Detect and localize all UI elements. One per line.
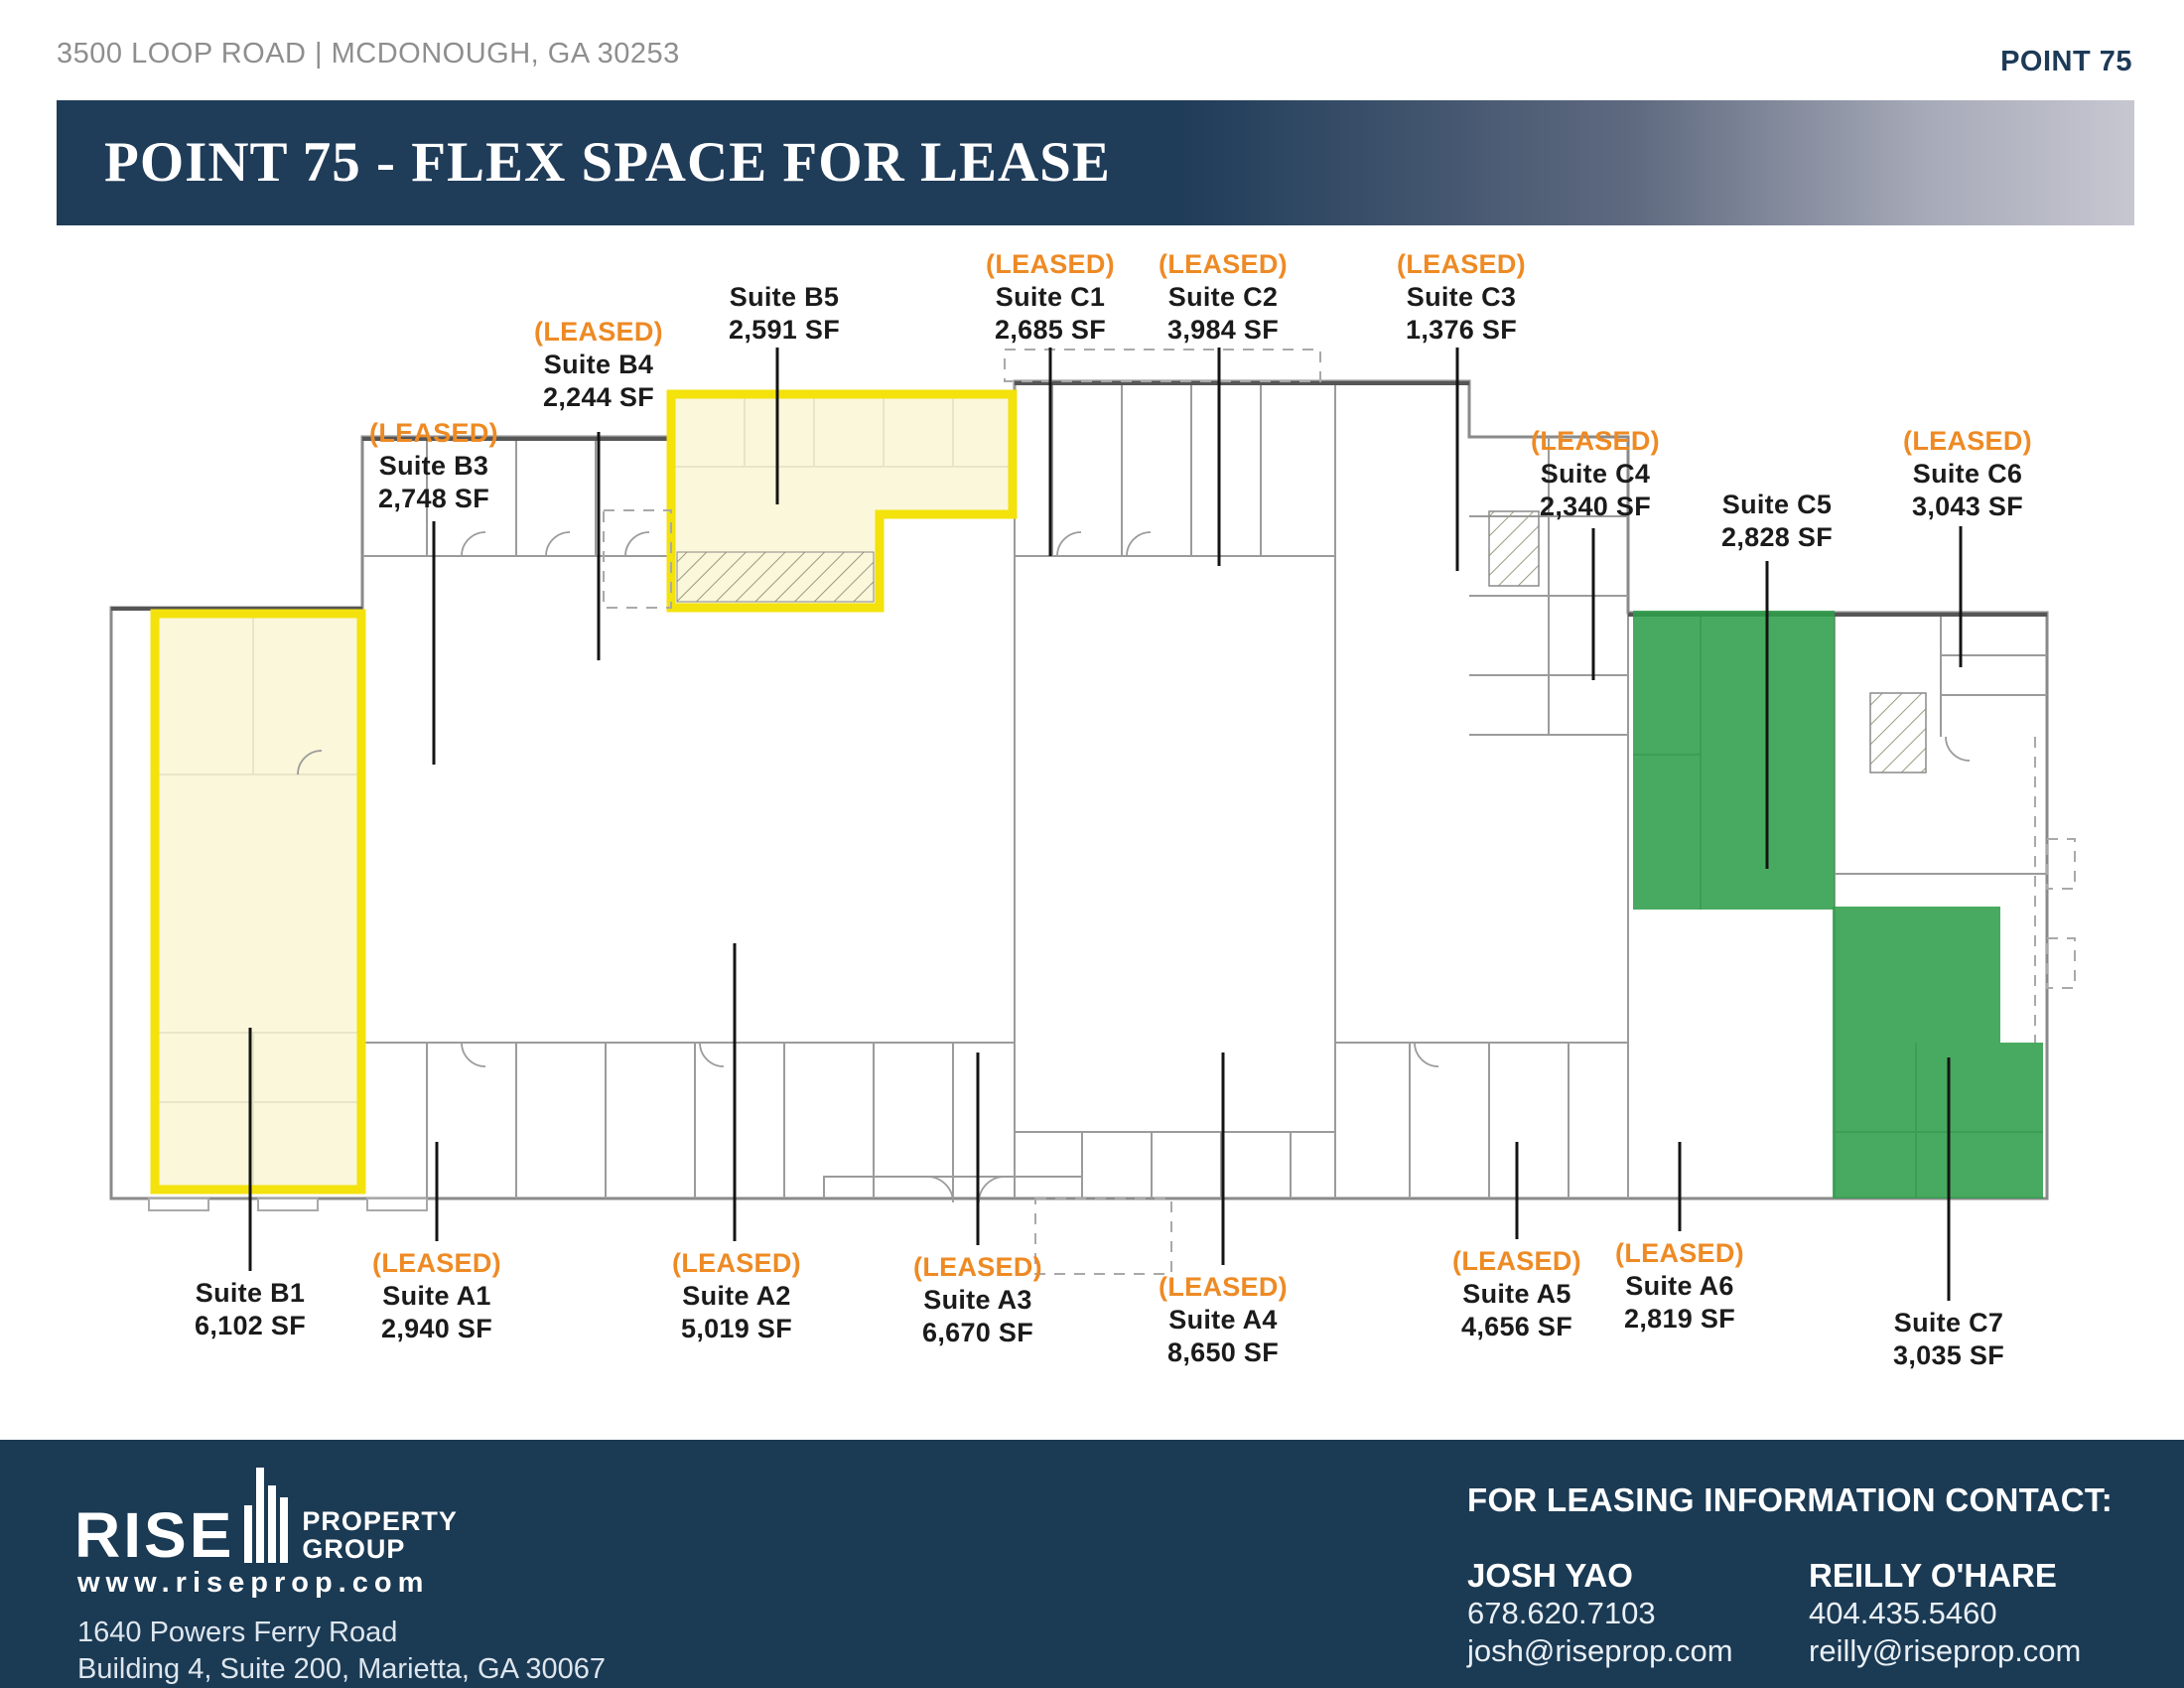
- suite-c5-highlight[interactable]: [1633, 611, 1835, 910]
- suite-name: Suite B4: [534, 349, 663, 381]
- contact-name: REILLY O'HARE: [1809, 1557, 2081, 1595]
- suite-name: Suite C2: [1159, 281, 1288, 314]
- suite-name: Suite A5: [1452, 1278, 1581, 1311]
- suite-label-c6: (LEASED) Suite C6 3,043 SF: [1903, 425, 2032, 523]
- contact-card-josh-yao: JOSH YAO 678.620.7103 josh@riseprop.com: [1467, 1557, 1733, 1670]
- logo-subtitle-line1: PROPERTY: [302, 1507, 458, 1535]
- suite-name: Suite C4: [1531, 458, 1660, 491]
- suite-sf: 6,102 SF: [195, 1310, 306, 1342]
- suite-name: Suite C7: [1893, 1307, 2004, 1339]
- suite-label-a4: (LEASED) Suite A4 8,650 SF: [1159, 1271, 1288, 1369]
- leased-tag: (LEASED): [534, 316, 663, 349]
- suite-name: Suite A3: [913, 1284, 1042, 1317]
- leased-tag: (LEASED): [1159, 1271, 1288, 1304]
- suite-name: Suite B1: [195, 1277, 306, 1310]
- leased-tag: (LEASED): [369, 417, 498, 450]
- suite-sf: 2,340 SF: [1531, 491, 1660, 523]
- company-logo: RISE PROPERTY GROUP: [74, 1468, 458, 1565]
- leased-tag: (LEASED): [1615, 1237, 1744, 1270]
- suite-label-c2: (LEASED) Suite C2 3,984 SF: [1159, 248, 1288, 347]
- leased-tag: (LEASED): [913, 1251, 1042, 1284]
- suite-name: Suite C6: [1903, 458, 2032, 491]
- suite-sf: 2,591 SF: [729, 314, 840, 347]
- contact-card-reilly-ohare: REILLY O'HARE 404.435.5460 reilly@risepr…: [1809, 1557, 2081, 1670]
- suite-label-b5: Suite B5 2,591 SF: [729, 281, 840, 347]
- suite-label-b4: (LEASED) Suite B4 2,244 SF: [534, 316, 663, 414]
- suite-sf: 8,650 SF: [1159, 1336, 1288, 1369]
- company-address-line2: Building 4, Suite 200, Marietta, GA 3006…: [77, 1651, 606, 1688]
- company-address: 1640 Powers Ferry Road Building 4, Suite…: [77, 1615, 606, 1688]
- suite-sf: 2,819 SF: [1615, 1303, 1744, 1336]
- suite-label-c1: (LEASED) Suite C1 2,685 SF: [986, 248, 1115, 347]
- suite-label-c7: Suite C7 3,035 SF: [1893, 1307, 2004, 1372]
- website-link[interactable]: www.riseprop.com: [77, 1567, 429, 1600]
- suite-sf: 6,670 SF: [913, 1317, 1042, 1349]
- leased-tag: (LEASED): [1452, 1245, 1581, 1278]
- leased-tag: (LEASED): [1397, 248, 1526, 281]
- suite-name: Suite C5: [1721, 489, 1833, 521]
- suite-sf: 3,984 SF: [1159, 314, 1288, 347]
- suite-name: Suite C1: [986, 281, 1115, 314]
- suite-sf: 3,035 SF: [1893, 1339, 2004, 1372]
- suite-b1-highlight[interactable]: [155, 614, 361, 1190]
- skyline-bars-icon: [244, 1468, 292, 1563]
- suite-sf: 2,828 SF: [1721, 521, 1833, 554]
- contact-name: JOSH YAO: [1467, 1557, 1733, 1595]
- suite-label-a6: (LEASED) Suite A6 2,819 SF: [1615, 1237, 1744, 1336]
- suite-name: Suite A1: [372, 1280, 501, 1313]
- suite-sf: 3,043 SF: [1903, 491, 2032, 523]
- suite-name: Suite A2: [672, 1280, 801, 1313]
- company-address-line1: 1640 Powers Ferry Road: [77, 1615, 606, 1651]
- leased-tag: (LEASED): [1531, 425, 1660, 458]
- logo-subtitle: PROPERTY GROUP: [302, 1507, 458, 1563]
- leased-tag: (LEASED): [372, 1247, 501, 1280]
- leased-tag: (LEASED): [672, 1247, 801, 1280]
- logo-subtitle-line2: GROUP: [302, 1535, 458, 1563]
- suite-b5-hatch-area: [677, 552, 874, 602]
- contact-phone[interactable]: 404.435.5460: [1809, 1595, 2081, 1632]
- suite-label-c5: Suite C5 2,828 SF: [1721, 489, 1833, 554]
- suite-label-a3: (LEASED) Suite A3 6,670 SF: [913, 1251, 1042, 1349]
- suite-sf: 2,685 SF: [986, 314, 1115, 347]
- suite-label-c3: (LEASED) Suite C3 1,376 SF: [1397, 248, 1526, 347]
- footer: RISE PROPERTY GROUP www.riseprop.com 164…: [0, 1440, 2184, 1688]
- suite-label-a1: (LEASED) Suite A1 2,940 SF: [372, 1247, 501, 1345]
- suite-name: Suite B3: [369, 450, 498, 483]
- suite-sf: 4,656 SF: [1452, 1311, 1581, 1343]
- leased-tag: (LEASED): [986, 248, 1115, 281]
- suite-label-c4: (LEASED) Suite C4 2,340 SF: [1531, 425, 1660, 523]
- contact-email[interactable]: josh@riseprop.com: [1467, 1632, 1733, 1670]
- suite-sf: 2,940 SF: [372, 1313, 501, 1345]
- suite-label-b3: (LEASED) Suite B3 2,748 SF: [369, 417, 498, 515]
- leased-tag: (LEASED): [1903, 425, 2032, 458]
- contact-email[interactable]: reilly@riseprop.com: [1809, 1632, 2081, 1670]
- contact-heading: FOR LEASING INFORMATION CONTACT:: [1467, 1481, 2113, 1519]
- suite-sf: 1,376 SF: [1397, 314, 1526, 347]
- suite-sf: 5,019 SF: [672, 1313, 801, 1345]
- contact-phone[interactable]: 678.620.7103: [1467, 1595, 1733, 1632]
- suite-name: Suite C3: [1397, 281, 1526, 314]
- suite-sf: 2,244 SF: [534, 381, 663, 414]
- suite-label-a5: (LEASED) Suite A5 4,656 SF: [1452, 1245, 1581, 1343]
- logo-brand-text: RISE: [74, 1505, 234, 1565]
- suite-sf: 2,748 SF: [369, 483, 498, 515]
- leased-tag: (LEASED): [1159, 248, 1288, 281]
- suite-name: Suite B5: [729, 281, 840, 314]
- suite-name: Suite A4: [1159, 1304, 1288, 1336]
- dock-details: [149, 1198, 427, 1210]
- suite-name: Suite A6: [1615, 1270, 1744, 1303]
- suite-label-b1: Suite B1 6,102 SF: [195, 1277, 306, 1342]
- suite-label-a2: (LEASED) Suite A2 5,019 SF: [672, 1247, 801, 1345]
